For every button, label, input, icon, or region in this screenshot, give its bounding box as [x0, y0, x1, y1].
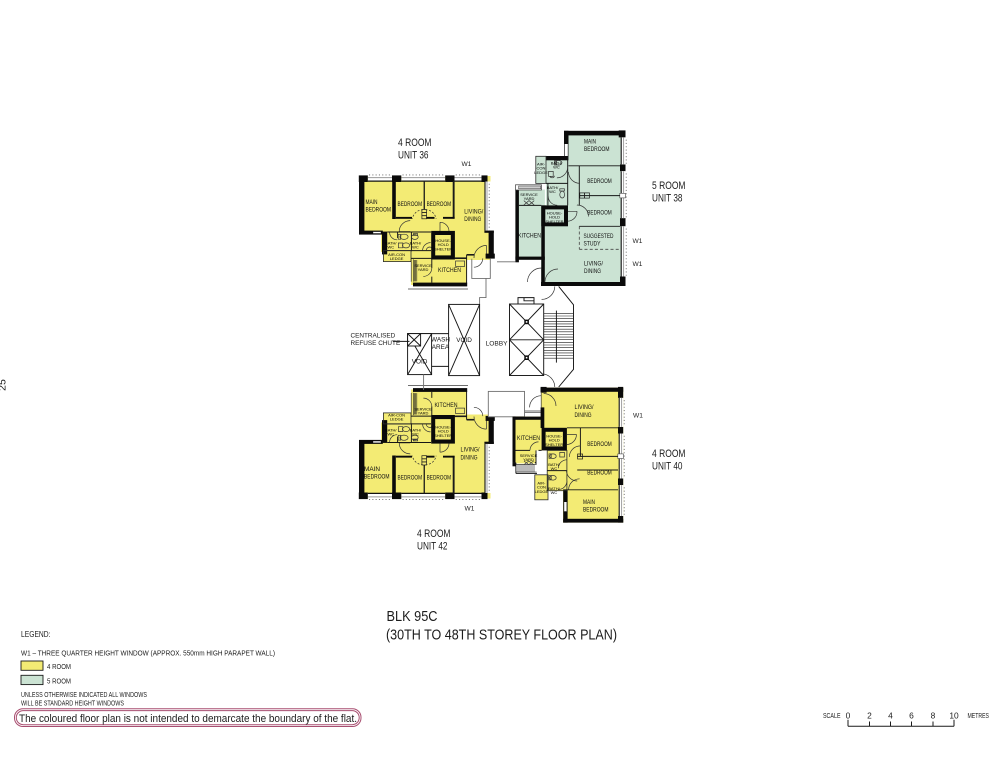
svg-text:VOID: VOID — [412, 358, 428, 365]
svg-text:4 ROOM: 4 ROOM — [417, 528, 451, 540]
svg-text:LEDGE: LEDGE — [390, 256, 404, 261]
svg-text:LEDGE: LEDGE — [535, 489, 549, 494]
svg-text:MAIN: MAIN — [584, 139, 596, 146]
svg-text:4 ROOM: 4 ROOM — [47, 662, 71, 671]
svg-text:WILL BE STANDARD HEIGHT WI: WILL BE STANDARD HEIGHT WINDOWS — [21, 699, 124, 708]
svg-text:UNIT 36: UNIT 36 — [398, 150, 429, 162]
svg-text:BEDROOM: BEDROOM — [587, 470, 612, 477]
svg-text:YARD: YARD — [524, 196, 535, 201]
svg-text:WC: WC — [551, 466, 558, 471]
svg-text:BLK 95C: BLK 95C — [387, 609, 438, 625]
svg-text:KITCHEN: KITCHEN — [435, 402, 458, 409]
svg-text:LEGEND:: LEGEND: — [21, 629, 51, 639]
svg-text:SCALE: SCALE — [823, 711, 841, 720]
svg-text:YARD: YARD — [523, 457, 534, 462]
svg-text:LOBBY: LOBBY — [486, 341, 509, 348]
svg-text:KITCHEN: KITCHEN — [518, 233, 541, 240]
svg-text:LIVING/: LIVING/ — [584, 261, 603, 268]
svg-text:LIVING/: LIVING/ — [461, 447, 480, 454]
svg-text:YARD: YARD — [418, 267, 429, 272]
svg-text:WC: WC — [549, 189, 556, 194]
svg-text:STUDY: STUDY — [584, 241, 602, 248]
svg-text:6: 6 — [909, 711, 914, 721]
svg-text:WC: WC — [551, 490, 558, 495]
svg-text:W1: W1 — [465, 506, 475, 513]
svg-text:5 ROOM: 5 ROOM — [652, 180, 686, 192]
svg-text:SHELTER: SHELTER — [545, 442, 563, 447]
svg-text:5 ROOM: 5 ROOM — [47, 676, 71, 685]
svg-text:DINING: DINING — [575, 412, 592, 419]
svg-text:The coloured floor plan is not: The coloured floor plan is not intended … — [19, 713, 357, 725]
svg-text:(30TH TO 48TH STOREY FLOOR: (30TH TO 48TH STOREY FLOOR PLAN) — [386, 628, 617, 644]
svg-text:W1: W1 — [633, 413, 643, 420]
svg-text:25: 25 — [0, 379, 9, 391]
svg-text:WC: WC — [412, 432, 419, 437]
svg-text:DINING: DINING — [584, 268, 601, 275]
svg-text:BEDROOM: BEDROOM — [587, 210, 612, 217]
svg-text:MAIN: MAIN — [364, 466, 380, 473]
svg-text:WC: WC — [412, 245, 419, 250]
svg-text:BEDROOM: BEDROOM — [587, 178, 612, 185]
svg-text:BEDROOM: BEDROOM — [398, 475, 423, 482]
svg-text:BEDROOM: BEDROOM — [583, 507, 609, 514]
svg-text:KITCHEN: KITCHEN — [438, 267, 461, 274]
svg-text:LIVING/: LIVING/ — [575, 404, 594, 411]
svg-text:AREA: AREA — [432, 344, 450, 351]
svg-text:METRES: METRES — [968, 711, 990, 720]
svg-text:8: 8 — [931, 711, 936, 721]
svg-text:W1: W1 — [633, 238, 643, 245]
svg-text:LEDGE: LEDGE — [534, 170, 548, 175]
svg-text:W1: W1 — [633, 261, 643, 268]
svg-text:LIVING/: LIVING/ — [464, 209, 483, 216]
svg-text:WC: WC — [553, 165, 560, 170]
svg-text:KITCHEN: KITCHEN — [517, 435, 540, 442]
svg-text:W1: W1 — [462, 161, 472, 168]
svg-text:BEDROOM: BEDROOM — [427, 201, 452, 208]
svg-text:SHELTER: SHELTER — [545, 219, 563, 224]
svg-text:UNIT 42: UNIT 42 — [417, 541, 448, 553]
svg-text:DINING: DINING — [461, 455, 478, 462]
svg-text:BEDROOM: BEDROOM — [364, 474, 390, 481]
svg-text:BEDROOM: BEDROOM — [584, 146, 610, 153]
svg-text:BEDROOM: BEDROOM — [587, 441, 612, 448]
svg-text:SUGGESTED: SUGGESTED — [584, 233, 614, 240]
svg-text:2: 2 — [867, 711, 872, 721]
svg-text:DINING: DINING — [464, 216, 481, 223]
svg-text:YARD: YARD — [418, 411, 429, 416]
svg-text:UNIT 38: UNIT 38 — [652, 193, 683, 205]
svg-text:BEDROOM: BEDROOM — [366, 207, 392, 214]
svg-text:SHELTER: SHELTER — [434, 246, 452, 251]
svg-text:LEDGE: LEDGE — [390, 417, 404, 422]
svg-text:4 ROOM: 4 ROOM — [398, 137, 432, 149]
svg-text:WC: WC — [387, 432, 394, 437]
svg-text:MAIN: MAIN — [583, 499, 595, 506]
svg-text:SHELTER: SHELTER — [434, 433, 452, 438]
svg-text:4: 4 — [888, 711, 893, 721]
svg-text:W1 – THREE QUARTER HEIGHT: W1 – THREE QUARTER HEIGHT WINDOW (APPROX… — [21, 649, 275, 658]
svg-text:UNIT 40: UNIT 40 — [652, 461, 683, 473]
svg-text:4 ROOM: 4 ROOM — [652, 448, 686, 460]
svg-text:0: 0 — [846, 711, 851, 721]
svg-text:VOID: VOID — [456, 337, 472, 344]
svg-text:10: 10 — [949, 711, 959, 721]
svg-text:WASH: WASH — [431, 337, 450, 344]
svg-text:MAIN: MAIN — [366, 199, 378, 206]
svg-text:REFUSE CHUTE: REFUSE CHUTE — [351, 340, 401, 347]
svg-text:WC: WC — [387, 245, 394, 250]
svg-text:BEDROOM: BEDROOM — [398, 201, 423, 208]
svg-text:CENTRALISED: CENTRALISED — [351, 333, 396, 340]
svg-text:BEDROOM: BEDROOM — [427, 475, 452, 482]
